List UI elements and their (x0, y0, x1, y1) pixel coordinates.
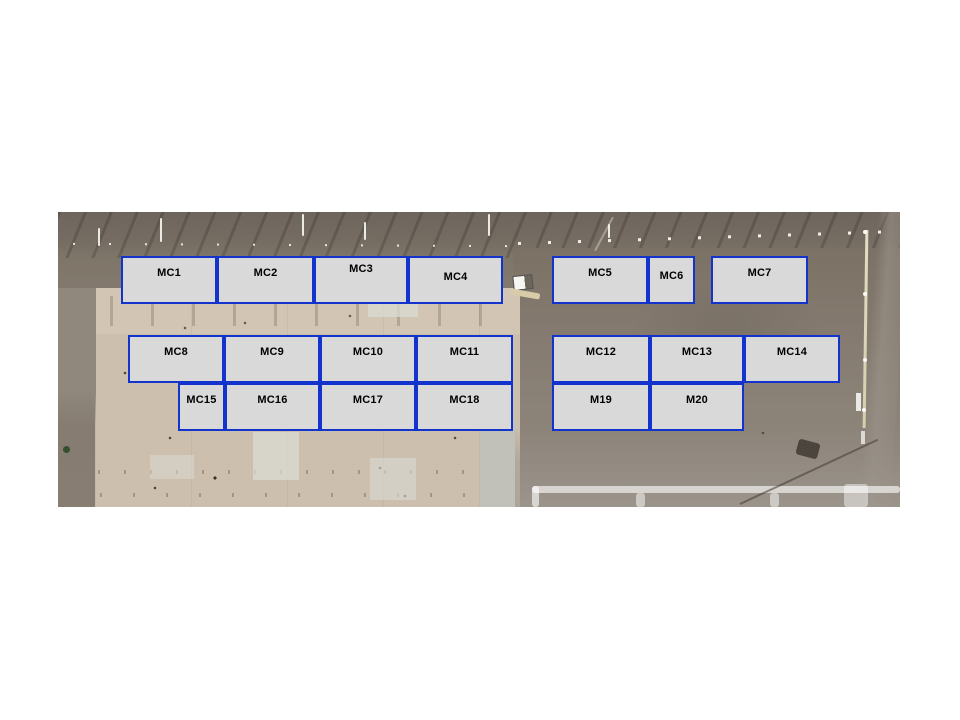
fence-post (364, 222, 366, 240)
zone-box-mc8[interactable]: MC8 (128, 335, 224, 383)
zone-box-mc1[interactable]: MC1 (121, 256, 217, 304)
zone-label: MC11 (418, 346, 511, 358)
zone-box-mc11[interactable]: MC11 (416, 335, 513, 383)
slide-canvas: MC1MC2MC3MC4MC5MC6MC7MC8MC9MC10MC11MC12M… (0, 0, 960, 720)
zone-label: MC3 (316, 263, 406, 275)
zone-label: M19 (554, 394, 648, 406)
zone-box-m20[interactable]: M20 (650, 383, 744, 431)
zone-label: MC7 (713, 267, 806, 279)
zone-label: MC5 (554, 267, 646, 279)
aerial-slab (480, 420, 516, 507)
zone-box-mc10[interactable]: MC10 (320, 335, 416, 383)
zone-box-mc3[interactable]: MC3 (314, 256, 408, 304)
aerial-white-object (856, 393, 861, 411)
aerial-white-marking (532, 486, 539, 507)
zone-label: MC6 (650, 270, 693, 282)
aerial-white-object (861, 431, 865, 444)
aerial-white-marking (636, 493, 645, 507)
zone-box-mc14[interactable]: MC14 (744, 335, 840, 383)
zone-label: MC4 (410, 271, 501, 283)
fence-post (302, 214, 304, 236)
zone-label: MC1 (123, 267, 215, 279)
pipeline-joint (862, 408, 866, 412)
site-map: MC1MC2MC3MC4MC5MC6MC7MC8MC9MC10MC11MC12M… (58, 212, 900, 507)
zone-box-m19[interactable]: M19 (552, 383, 650, 431)
zone-box-mc16[interactable]: MC16 (225, 383, 320, 431)
fence-post (488, 214, 490, 236)
zone-box-mc18[interactable]: MC18 (416, 383, 513, 431)
zone-box-mc2[interactable]: MC2 (217, 256, 314, 304)
zone-label: MC10 (322, 346, 414, 358)
aerial-gray-strip (58, 288, 96, 425)
zone-box-mc12[interactable]: MC12 (552, 335, 650, 383)
aerial-pad-speckle-row (100, 493, 520, 497)
zone-label: MC13 (652, 346, 742, 358)
vegetation-dot (63, 446, 70, 453)
fence-post (608, 224, 610, 238)
zone-label: MC18 (418, 394, 511, 406)
aerial-ground-patch (150, 455, 194, 479)
aerial-road-bottom (515, 425, 900, 507)
zone-box-mc4[interactable]: MC4 (408, 256, 503, 304)
zone-label: MC16 (227, 394, 318, 406)
zone-label: M20 (652, 394, 742, 406)
aerial-ground-patch (370, 458, 416, 500)
zone-label: MC9 (226, 346, 318, 358)
zone-box-mc15[interactable]: MC15 (178, 383, 225, 431)
zone-label: MC15 (180, 394, 223, 406)
zone-label: MC2 (219, 267, 312, 279)
zone-label: MC8 (130, 346, 222, 358)
fence-post (98, 228, 100, 246)
zone-box-mc6[interactable]: MC6 (648, 256, 695, 304)
zone-label: MC12 (554, 346, 648, 358)
zone-box-mc5[interactable]: MC5 (552, 256, 648, 304)
zone-box-mc13[interactable]: MC13 (650, 335, 744, 383)
aerial-white-marking (844, 484, 868, 507)
pipeline-joint (863, 358, 867, 362)
aerial-white-marking (770, 493, 779, 507)
zone-box-mc7[interactable]: MC7 (711, 256, 808, 304)
zone-box-mc9[interactable]: MC9 (224, 335, 320, 383)
fence-post (160, 218, 162, 242)
aerial-ground-patch (253, 432, 299, 480)
pipeline-joint (863, 230, 867, 234)
zone-box-mc17[interactable]: MC17 (320, 383, 416, 431)
zone-label: MC17 (322, 394, 414, 406)
pipeline-joint (863, 292, 867, 296)
zone-label: MC14 (746, 346, 838, 358)
